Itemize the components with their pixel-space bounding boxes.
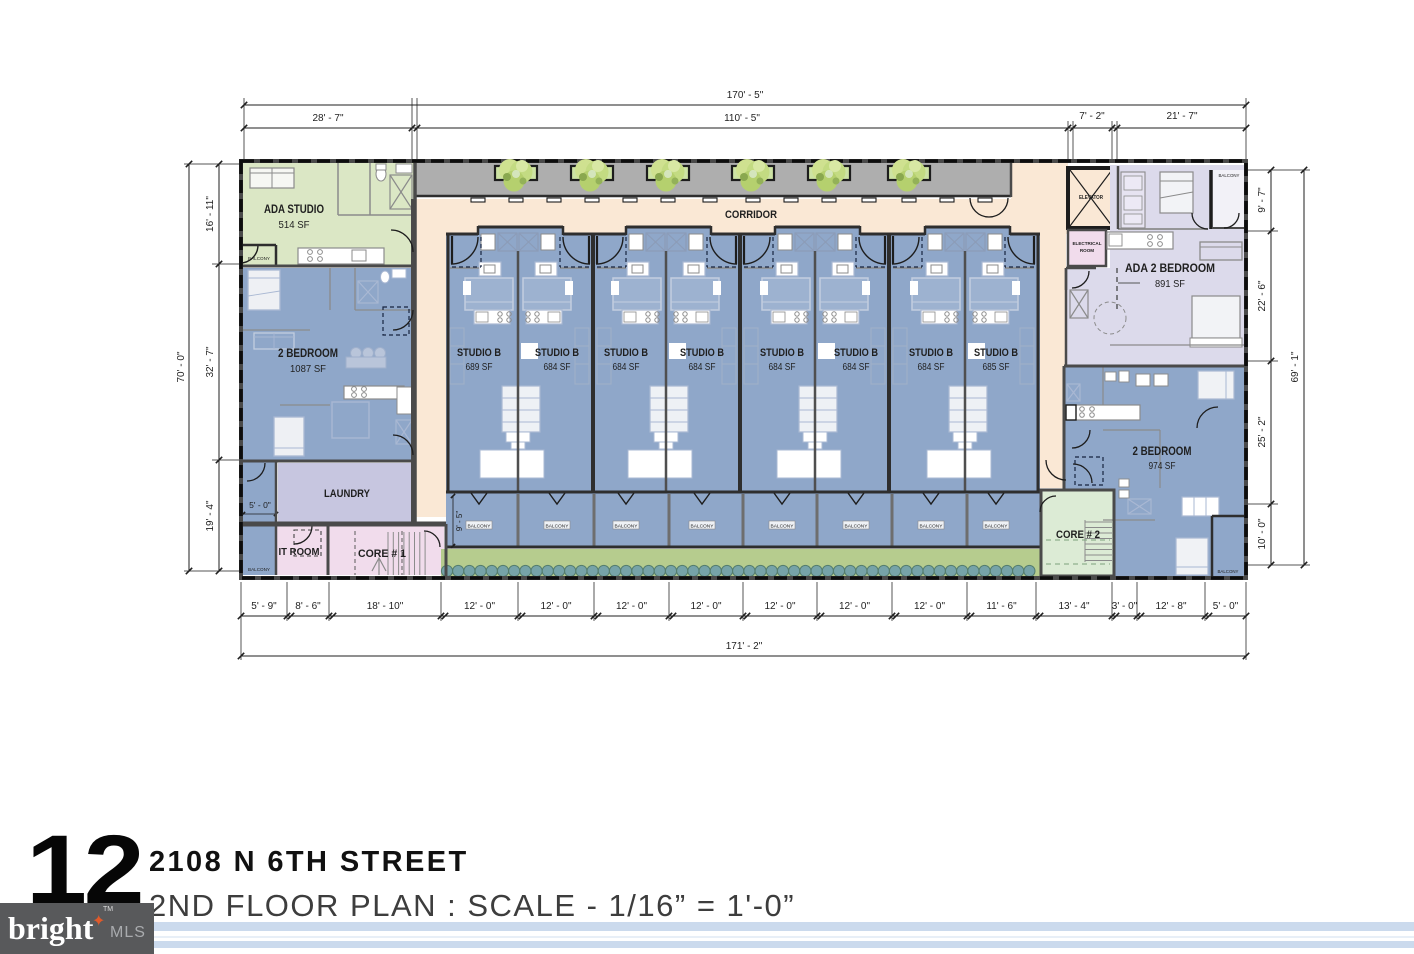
svg-text:5' - 0": 5' - 0": [1213, 601, 1239, 612]
svg-text:891 SF: 891 SF: [1155, 279, 1185, 290]
svg-text:7' - 2": 7' - 2": [1079, 111, 1105, 122]
svg-text:BALCONY: BALCONY: [248, 256, 270, 261]
svg-text:28' - 7": 28' - 7": [312, 113, 343, 124]
svg-text:STUDIO B: STUDIO B: [760, 347, 804, 359]
svg-text:CORE # 2: CORE # 2: [1056, 529, 1100, 541]
svg-text:684 SF: 684 SF: [843, 362, 870, 373]
svg-text:70' - 0": 70' - 0": [176, 351, 187, 382]
svg-text:2 BEDROOM: 2 BEDROOM: [278, 346, 338, 360]
svg-text:BALCONY: BALCONY: [985, 524, 1009, 530]
svg-text:16' - 11": 16' - 11": [205, 196, 216, 232]
svg-text:ELECTRICAL: ELECTRICAL: [1072, 241, 1101, 246]
svg-text:12' - 0": 12' - 0": [764, 601, 795, 612]
svg-text:2 BEDROOM: 2 BEDROOM: [1133, 444, 1192, 458]
svg-text:12' - 0": 12' - 0": [616, 601, 647, 612]
svg-text:5' - 9": 5' - 9": [251, 601, 277, 612]
svg-text:9' - 7": 9' - 7": [1257, 187, 1268, 213]
svg-text:ROOM: ROOM: [1080, 248, 1094, 253]
svg-text:BALCONY: BALCONY: [691, 524, 715, 530]
svg-text:13' - 4": 13' - 4": [1058, 601, 1089, 612]
svg-text:684 SF: 684 SF: [613, 362, 640, 373]
svg-text:684 SF: 684 SF: [769, 362, 796, 373]
svg-text:18' - 10": 18' - 10": [367, 601, 404, 612]
svg-text:8' - 6": 8' - 6": [295, 601, 321, 612]
svg-text:ADA STUDIO: ADA STUDIO: [264, 202, 324, 216]
svg-text:1087 SF: 1087 SF: [290, 364, 326, 375]
svg-text:11' - 6": 11' - 6": [986, 601, 1017, 612]
svg-text:LAUNDRY: LAUNDRY: [324, 488, 371, 500]
svg-text:BALCONY: BALCONY: [248, 567, 270, 572]
svg-text:STUDIO B: STUDIO B: [604, 347, 648, 359]
svg-text:514 SF: 514 SF: [279, 220, 310, 231]
svg-text:12' - 0": 12' - 0": [914, 601, 945, 612]
svg-text:STUDIO B: STUDIO B: [909, 347, 953, 359]
svg-text:BALCONY: BALCONY: [468, 524, 492, 530]
svg-text:25' - 2": 25' - 2": [1257, 416, 1268, 447]
svg-text:BALCONY: BALCONY: [771, 524, 795, 530]
svg-text:5' - 0": 5' - 0": [249, 500, 271, 510]
svg-text:12' - 0": 12' - 0": [839, 601, 870, 612]
svg-text:CORRIDOR: CORRIDOR: [725, 209, 777, 221]
svg-text:CORE # 1: CORE # 1: [358, 548, 406, 560]
svg-text:STUDIO B: STUDIO B: [680, 347, 724, 359]
svg-text:171' - 2": 171' - 2": [726, 641, 763, 652]
svg-text:STUDIO B: STUDIO B: [974, 347, 1018, 359]
svg-text:19' - 4": 19' - 4": [205, 500, 216, 531]
svg-text:STUDIO B: STUDIO B: [457, 347, 501, 359]
svg-text:170' - 5": 170' - 5": [727, 90, 764, 101]
svg-text:STUDIO B: STUDIO B: [535, 347, 579, 359]
svg-text:22' - 6": 22' - 6": [1257, 280, 1268, 311]
svg-text:BALCONY: BALCONY: [920, 524, 944, 530]
svg-text:BALCONY: BALCONY: [1218, 569, 1239, 574]
svg-text:684 SF: 684 SF: [544, 362, 571, 373]
svg-text:BALCONY: BALCONY: [546, 524, 570, 530]
svg-text:685 SF: 685 SF: [983, 362, 1010, 373]
svg-text:32' - 7": 32' - 7": [205, 346, 216, 377]
svg-text:IT ROOM: IT ROOM: [279, 546, 320, 558]
svg-text:12' - 8": 12' - 8": [1155, 601, 1186, 612]
svg-text:974 SF: 974 SF: [1149, 461, 1176, 472]
svg-text:ADA 2 BEDROOM: ADA 2 BEDROOM: [1125, 261, 1215, 275]
svg-text:ELEVATOR: ELEVATOR: [1079, 195, 1103, 201]
svg-text:10' - 0": 10' - 0": [1257, 518, 1268, 549]
svg-text:BALCONY: BALCONY: [845, 524, 869, 530]
svg-text:3' - 0": 3' - 0": [1112, 601, 1138, 612]
svg-text:110' - 5": 110' - 5": [724, 113, 760, 124]
svg-text:69' - 1": 69' - 1": [1290, 351, 1301, 382]
svg-text:684 SF: 684 SF: [689, 362, 716, 373]
svg-text:689 SF: 689 SF: [466, 362, 493, 373]
svg-text:12' - 0": 12' - 0": [690, 601, 721, 612]
svg-text:BALCONY: BALCONY: [1219, 173, 1240, 178]
svg-text:21' - 7": 21' - 7": [1166, 111, 1197, 122]
svg-text:BALCONY: BALCONY: [615, 524, 639, 530]
svg-text:STUDIO B: STUDIO B: [834, 347, 878, 359]
svg-text:12' - 0": 12' - 0": [464, 601, 495, 612]
svg-text:684 SF: 684 SF: [918, 362, 945, 373]
svg-text:12' - 0": 12' - 0": [540, 601, 571, 612]
svg-text:9' - 5": 9' - 5": [455, 511, 464, 532]
